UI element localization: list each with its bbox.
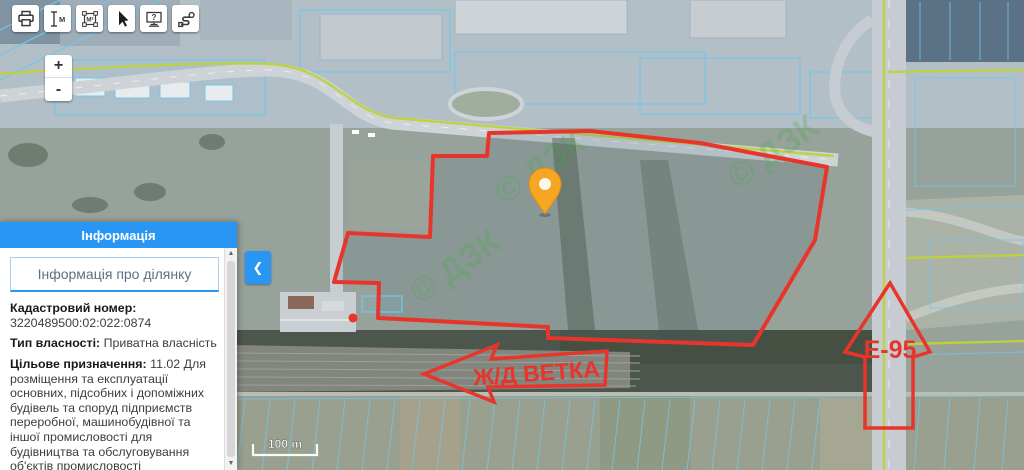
print-button[interactable] <box>12 5 39 32</box>
info-panel-title: Інформація <box>0 222 237 248</box>
measure-area-icon: М² <box>80 9 100 29</box>
svg-text:M: M <box>59 15 65 24</box>
point-marker <box>349 314 358 323</box>
tab-parcel-info[interactable]: Інформація про ділянку <box>10 257 219 292</box>
measure-length-button[interactable]: M <box>44 5 71 32</box>
field-purpose: Цільове призначення: 11.02 Для розміщенн… <box>10 357 219 470</box>
map-app-screen: © ДЗК © ДЗК © ДЗК Ж/Д ВЕТКА Е-95 100 m <box>0 0 1024 470</box>
scroll-down-icon[interactable]: ▼ <box>225 458 237 470</box>
scrollbar-thumb[interactable] <box>227 261 235 457</box>
printer-icon <box>16 9 36 29</box>
info-panel: Інформація Інформація про ділянку Кадаст… <box>0 222 237 470</box>
zoom-out-button[interactable]: - <box>45 78 72 101</box>
svg-text:?: ? <box>151 13 156 22</box>
field-ownership-type: Тип власності: Приватна власність <box>10 336 219 351</box>
highway-arrow-label: Е-95 <box>864 336 917 364</box>
panel-collapse-button[interactable]: ❮ <box>245 251 271 284</box>
route-button[interactable] <box>172 5 199 32</box>
help-monitor-icon: ? <box>144 9 164 29</box>
scroll-up-icon[interactable]: ▲ <box>225 248 237 260</box>
measure-area-button[interactable]: М² <box>76 5 103 32</box>
field-cadastral-number: Кадастровий номер: 3220489500:02:022:087… <box>10 301 219 330</box>
chevron-left-icon: ❮ <box>253 260 264 276</box>
help-button[interactable]: ? <box>140 5 167 32</box>
svg-text:М²: М² <box>86 16 93 23</box>
info-panel-body: Інформація про ділянку Кадастровий номер… <box>0 248 224 470</box>
panel-scrollbar[interactable]: ▲ ▼ <box>224 248 237 470</box>
cursor-icon <box>112 9 132 29</box>
zoom-control: + - <box>45 55 72 101</box>
scale-bar-label: 100 m <box>268 437 302 451</box>
zoom-in-button[interactable]: + <box>45 55 72 78</box>
cursor-button[interactable] <box>108 5 135 32</box>
route-icon <box>176 9 196 29</box>
roundabout <box>450 89 522 119</box>
measure-length-icon: M <box>48 9 68 29</box>
highway <box>872 0 906 470</box>
